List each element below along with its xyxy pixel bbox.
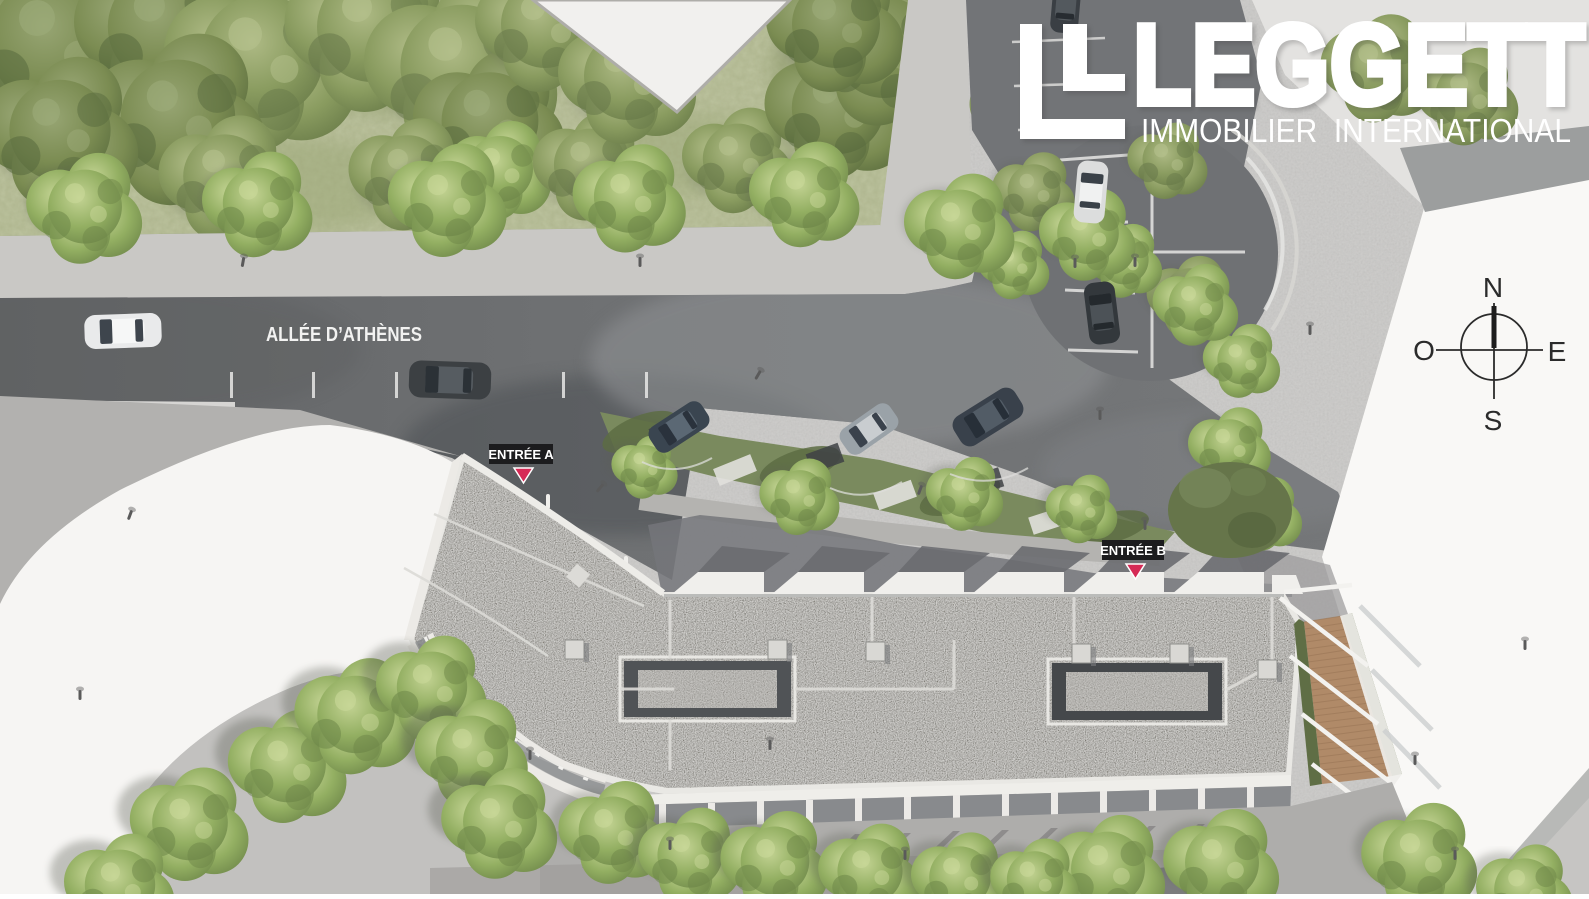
svg-text:IMMOBILIER INTERNATIONAL: IMMOBILIER INTERNATIONAL	[1141, 112, 1571, 149]
svg-text:N: N	[1483, 272, 1503, 303]
svg-text:S: S	[1484, 405, 1503, 436]
svg-text:LEGGETT: LEGGETT	[1133, 2, 1585, 129]
svg-text:O: O	[1413, 335, 1435, 366]
svg-text:E: E	[1548, 336, 1567, 367]
svg-text:ENTRÉE A: ENTRÉE A	[488, 447, 554, 462]
svg-text:ALLÉE D’ATHÈNES: ALLÉE D’ATHÈNES	[266, 323, 422, 346]
svg-text:ENTRÉE B: ENTRÉE B	[1100, 543, 1166, 558]
